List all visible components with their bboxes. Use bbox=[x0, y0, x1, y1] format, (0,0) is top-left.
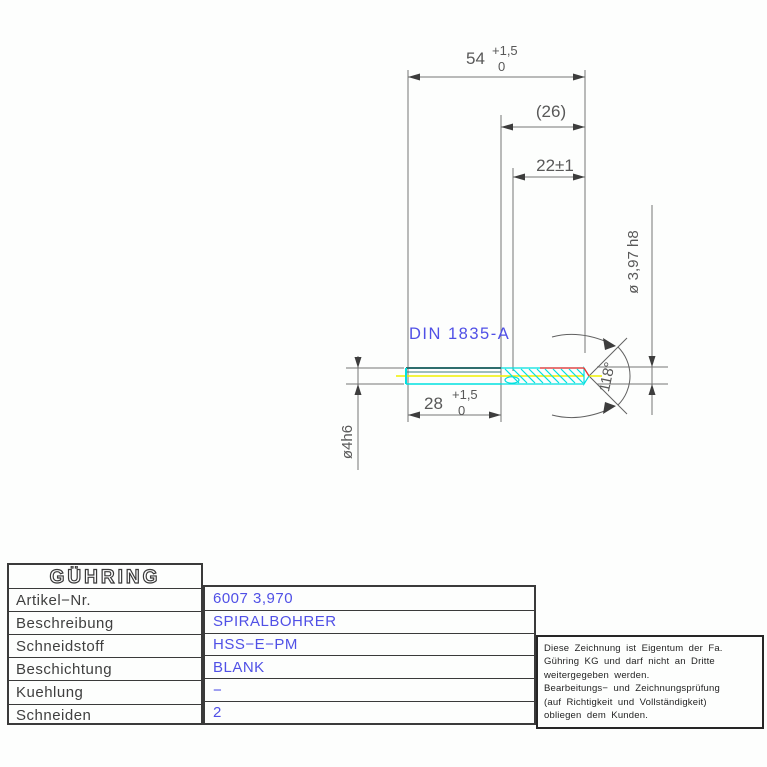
dim-shank-len-tol-upper: +1,5 bbox=[452, 387, 478, 402]
row-value-schneiden: 2 bbox=[205, 701, 534, 724]
dim-flute-usable: 22±1 bbox=[536, 156, 574, 175]
logo-text: GÜHRING bbox=[50, 567, 161, 588]
dim-overall-tol-upper: +1,5 bbox=[492, 43, 518, 58]
row-label-schneiden: Schneiden bbox=[9, 704, 201, 727]
dim-cut-dia: ø 3,97 h8 bbox=[625, 230, 642, 293]
row-value-kuehlung: − bbox=[205, 678, 534, 701]
dim-shank-len-value: 28 bbox=[424, 394, 443, 413]
notice-line: Diese Zeichnung ist Eigentum der Fa. bbox=[544, 642, 756, 655]
row-label-beschichtung: Beschichtung bbox=[9, 657, 201, 680]
row-label-artikel: Artikel−Nr. bbox=[9, 588, 201, 611]
row-label-kuehlung: Kuehlung bbox=[9, 680, 201, 703]
dimension-lines bbox=[346, 70, 668, 470]
guehring-logo: GÜHRING bbox=[9, 566, 201, 588]
row-label-schneidstoff: Schneidstoff bbox=[9, 634, 201, 657]
title-block-values: 6007 3,970 SPIRALBOHRER HSS−E−PM BLANK −… bbox=[203, 585, 536, 725]
technical-drawing: 54 +1,5 0 (26) 22±1 28 +1,5 0 ø4h6 ø 3,9… bbox=[0, 0, 767, 560]
dim-overall-value: 54 bbox=[466, 49, 485, 68]
ownership-notice: Diese Zeichnung ist Eigentum der Fa. Güh… bbox=[536, 635, 764, 729]
dimension-texts: 54 +1,5 0 (26) 22±1 28 +1,5 0 ø4h6 ø 3,9… bbox=[339, 43, 642, 459]
row-value-beschreibung: SPIRALBOHRER bbox=[205, 610, 534, 633]
row-value-schneidstoff: HSS−E−PM bbox=[205, 633, 534, 656]
title-block-labels: GÜHRING Artikel−Nr. Beschreibung Schneid… bbox=[7, 563, 203, 725]
notice-line: Gühring KG und darf nicht an Dritte bbox=[544, 655, 756, 668]
notice-line: weitergegeben werden. bbox=[544, 669, 756, 682]
row-value-artikel: 6007 3,970 bbox=[205, 587, 534, 610]
dim-flute-ref: (26) bbox=[536, 102, 566, 121]
logo-cell: GÜHRING bbox=[9, 565, 201, 588]
dim-shank-dia: ø4h6 bbox=[339, 425, 356, 459]
drill-body bbox=[396, 368, 602, 384]
dim-shank-len-tol-lower: 0 bbox=[458, 403, 465, 418]
notice-line: Bearbeitungs− und Zeichnungsprüfung bbox=[544, 682, 756, 695]
notice-line: (auf Richtigkeit und Vollständigkeit) bbox=[544, 696, 756, 709]
din-standard-label: DIN 1835-A bbox=[409, 325, 510, 343]
dim-overall-tol-lower: 0 bbox=[498, 59, 505, 74]
row-label-beschreibung: Beschreibung bbox=[9, 611, 201, 634]
notice-line: obliegen dem Kunden. bbox=[544, 709, 756, 722]
row-value-beschichtung: BLANK bbox=[205, 655, 534, 678]
